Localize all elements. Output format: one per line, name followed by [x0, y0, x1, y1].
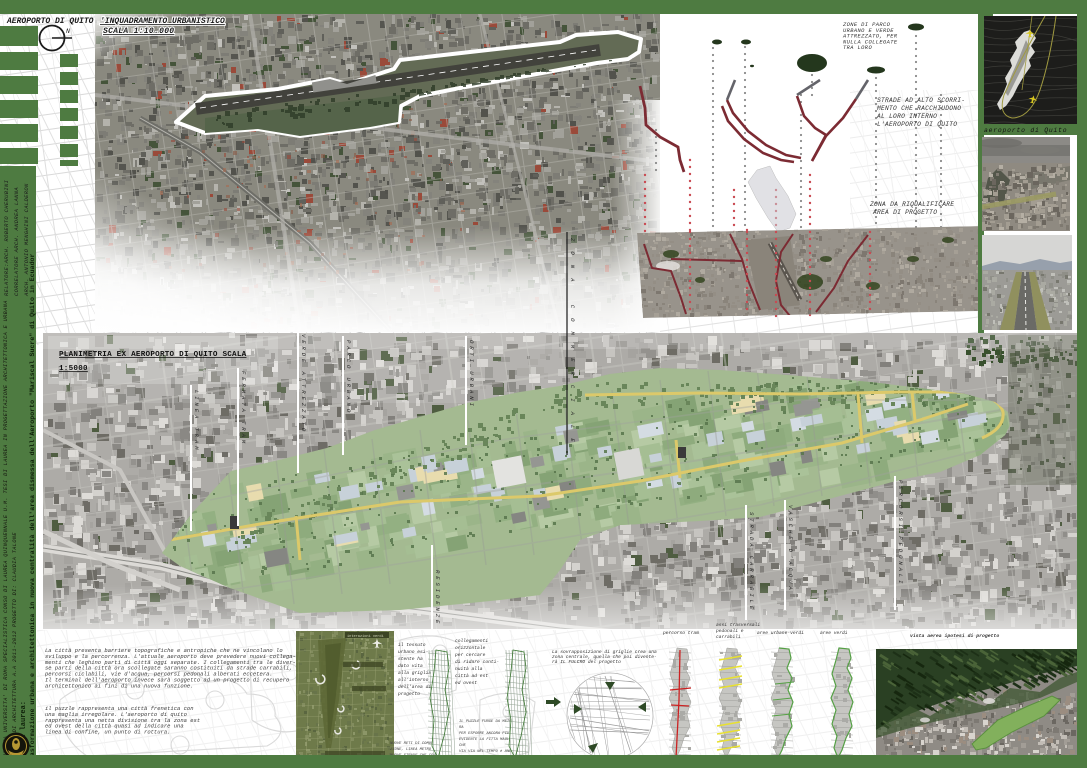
svg-text:orizzontale: orizzontale	[455, 645, 486, 651]
svg-text:alla griglia: alla griglia	[398, 670, 431, 676]
svg-text:carrabili: carrabili	[716, 634, 741, 640]
svg-text:nuità alla: nuità alla	[455, 666, 483, 672]
svg-text:dato vita: dato vita	[398, 663, 423, 669]
svg-text:città ad est: città ad est	[455, 673, 488, 679]
svg-text:progetto: progetto	[398, 691, 420, 697]
svg-text:L'AEROPORTO DI QUITO: L'AEROPORTO DI QUITO	[877, 121, 957, 128]
svg-text:aree urbane-verdi: aree urbane-verdi	[757, 630, 804, 636]
svg-text:ORTI URBANI: ORTI URBANI	[468, 340, 475, 409]
svg-text:CORRELATORE ARCH. ANDREA LANNA: CORRELATORE ARCH. ANDREA LANNA	[14, 187, 20, 296]
svg-text:collegamenti: collegamenti	[455, 638, 488, 644]
svg-text:CHE: CHE	[459, 744, 467, 748]
svg-text:SCALA 1:10.000: SCALA 1:10.000	[103, 27, 174, 36]
svg-text:percorso tram: percorso tram	[663, 630, 699, 636]
svg-text:stente ha: stente ha	[398, 656, 423, 662]
svg-text:ZONA DA RIQUALIFICARE: ZONA DA RIQUALIFICARE	[869, 201, 954, 208]
svg-text:VIA VIA NEL TEMPO è ANDATA: VIA VIA NEL TEMPO è ANDATA	[459, 749, 519, 754]
svg-text:VASCHE D'ACQUA: VASCHE D'ACQUA	[787, 505, 794, 593]
svg-text:EVIDENTE LA FITTA MAGLIA: EVIDENTE LA FITTA MAGLIA	[459, 738, 514, 742]
svg-text:ed ovest: ed ovest	[455, 680, 477, 686]
svg-text:VERDE ATTREZZATO: VERDE ATTREZZATO	[300, 334, 307, 434]
svg-text:vista aerea ipotesi di progett: vista aerea ipotesi di progetto	[910, 633, 999, 639]
svg-text:LINEA TRAM: LINEA TRAM	[193, 390, 200, 453]
svg-text:aree verdi: aree verdi	[820, 630, 848, 636]
svg-text:pedonali e: pedonali e	[716, 628, 744, 634]
svg-text:interazioni verdi: interazioni verdi	[347, 634, 384, 639]
svg-text:PER ESPORRE ANCORA PIU: PER ESPORRE ANCORA PIU	[459, 732, 510, 736]
svg-text:architettonico ai fini di una: architettonico ai fini di una nuova funz…	[45, 682, 194, 689]
svg-text:all'interno: all'interno	[398, 677, 429, 683]
svg-text:il tessuto: il tessuto	[398, 642, 426, 648]
svg-text:assi trasversali: assi trasversali	[716, 622, 760, 628]
svg-text:N: N	[66, 28, 70, 35]
svg-text:AL LORO INTERNO: AL LORO INTERNO	[876, 113, 937, 120]
svg-text:PERCORSI PEDONALI: PERCORSI PEDONALI	[897, 480, 904, 586]
svg-text:1:5000: 1:5000	[59, 365, 88, 373]
svg-text:per cercare: per cercare	[455, 653, 486, 658]
svg-text:FACOLTA' DI ARCHITETTURA A.A 2: FACOLTA' DI ARCHITETTURA A.A 2011-2012 P…	[12, 532, 18, 764]
svg-text:RA: RA	[459, 726, 464, 730]
svg-text:MENTO CHE RACCHIUDONO: MENTO CHE RACCHIUDONO	[877, 105, 961, 112]
svg-text:PLANIMETRIA EX AEROPORTO DI QU: PLANIMETRIA EX AEROPORTO DI QUITO SCALA	[59, 351, 247, 359]
svg-text:urbano esi-: urbano esi-	[398, 649, 429, 655]
svg-text:rà IL FULCRO del progetto: rà IL FULCRO del progetto	[552, 659, 621, 665]
svg-text:trasformazione urbana e archit: trasformazione urbana e architettonica i…	[29, 254, 36, 764]
svg-text:RELATORE:ARCH. ROBERTO CHERUBI: RELATORE:ARCH. ROBERTO CHERUBINI	[4, 179, 10, 296]
svg-text:AREA DI PROGETTO: AREA DI PROGETTO	[872, 209, 937, 216]
svg-text:STRADE AD ALTO SCORRI-: STRADE AD ALTO SCORRI-	[877, 97, 965, 104]
svg-text:dell'area di: dell'area di	[398, 684, 431, 690]
svg-text:STRADA CARRABILE: STRADA CARRABILE	[748, 512, 755, 612]
svg-text:'INQUADRAMENTO URBANISTICO: 'INQUADRAMENTO URBANISTICO	[100, 17, 225, 26]
svg-text:SAPIENZA UNIVERSITA' DI ROMA: SAPIENZA UNIVERSITA' DI ROMA SPECIALISTI…	[3, 300, 9, 764]
svg-text:PARCO URBANO: PARCO URBANO	[345, 340, 352, 415]
svg-text:ZONA COMMERCIALE: ZONA COMMERCIALE	[569, 237, 576, 452]
svg-text:aeroporto di Quito: aeroporto di Quito	[984, 127, 1067, 134]
svg-text:FERMATA TRAM: FERMATA TRAM	[240, 371, 247, 446]
svg-text:AEROPORTO DI QUITO: AEROPORTO DI QUITO	[6, 17, 94, 26]
svg-text:linea di confine, un punto di: linea di confine, un punto di rottura.	[45, 729, 170, 736]
svg-text:RESIDENZE: RESIDENZE	[434, 570, 441, 626]
svg-text:di ridare conti-: di ridare conti-	[455, 659, 499, 665]
svg-text:TRA LORO: TRA LORO	[843, 45, 872, 51]
